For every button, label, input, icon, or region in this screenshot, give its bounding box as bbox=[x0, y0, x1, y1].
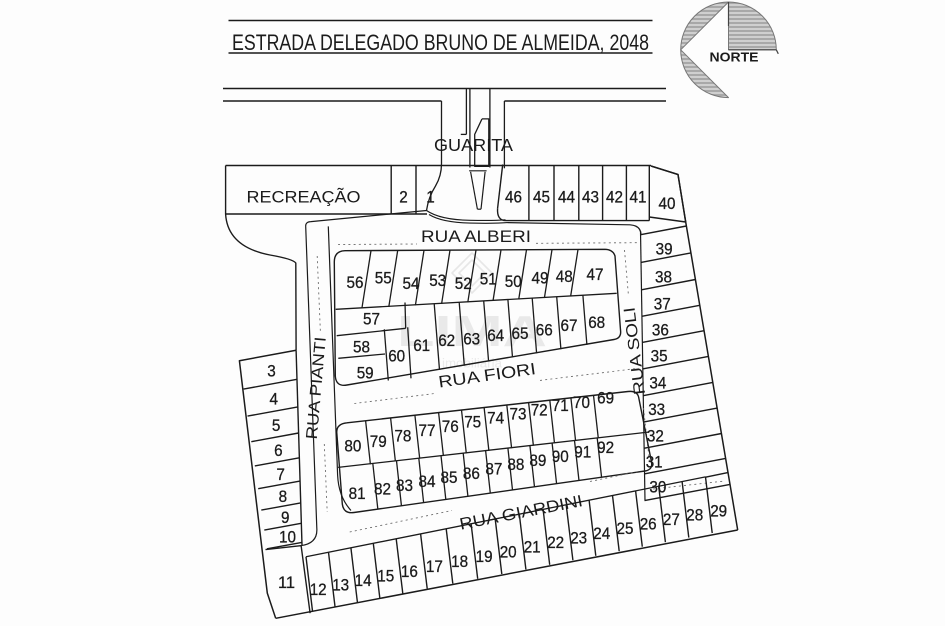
svg-text:5: 5 bbox=[272, 416, 281, 435]
svg-text:76: 76 bbox=[442, 417, 459, 436]
svg-text:86: 86 bbox=[463, 464, 480, 483]
svg-text:69: 69 bbox=[597, 389, 614, 408]
svg-text:48: 48 bbox=[556, 267, 573, 286]
svg-text:27: 27 bbox=[663, 510, 680, 529]
svg-text:42: 42 bbox=[606, 188, 623, 207]
svg-text:78: 78 bbox=[394, 427, 411, 446]
svg-text:49: 49 bbox=[532, 268, 549, 287]
svg-text:32: 32 bbox=[647, 426, 664, 445]
svg-text:65: 65 bbox=[512, 324, 529, 343]
svg-text:NORTE: NORTE bbox=[710, 51, 759, 65]
svg-text:85: 85 bbox=[441, 468, 458, 487]
svg-text:6: 6 bbox=[274, 441, 283, 460]
svg-text:47: 47 bbox=[587, 265, 604, 284]
svg-text:31: 31 bbox=[646, 453, 663, 472]
svg-text:18: 18 bbox=[451, 552, 468, 571]
svg-text:ESTRADA DELEGADO BRUNO DE ALME: ESTRADA DELEGADO BRUNO DE ALMEIDA, 2048 bbox=[232, 30, 649, 55]
svg-text:62: 62 bbox=[438, 331, 455, 350]
svg-text:11: 11 bbox=[278, 573, 295, 592]
svg-text:28: 28 bbox=[686, 505, 703, 524]
svg-text:21: 21 bbox=[524, 538, 541, 557]
svg-text:64: 64 bbox=[487, 326, 504, 345]
svg-text:58: 58 bbox=[353, 337, 370, 356]
svg-text:73: 73 bbox=[510, 405, 527, 424]
svg-text:RUA ALBERI: RUA ALBERI bbox=[421, 228, 531, 246]
svg-text:55: 55 bbox=[375, 268, 392, 287]
svg-text:35: 35 bbox=[651, 347, 668, 366]
svg-text:43: 43 bbox=[582, 188, 599, 207]
svg-text:51: 51 bbox=[480, 269, 497, 288]
svg-text:44: 44 bbox=[558, 188, 575, 207]
svg-text:89: 89 bbox=[529, 451, 546, 470]
svg-text:7: 7 bbox=[276, 465, 285, 484]
svg-text:25: 25 bbox=[617, 519, 634, 538]
svg-text:60: 60 bbox=[388, 347, 405, 366]
svg-text:70: 70 bbox=[573, 393, 590, 412]
svg-text:53: 53 bbox=[429, 271, 446, 290]
svg-text:91: 91 bbox=[574, 442, 591, 461]
svg-text:88: 88 bbox=[507, 455, 524, 474]
svg-text:39: 39 bbox=[656, 240, 673, 259]
svg-text:56: 56 bbox=[347, 273, 364, 292]
svg-text:14: 14 bbox=[355, 571, 372, 590]
svg-text:54: 54 bbox=[403, 274, 420, 293]
svg-text:77: 77 bbox=[419, 421, 436, 440]
svg-text:50: 50 bbox=[505, 272, 522, 291]
svg-text:63: 63 bbox=[463, 329, 480, 348]
svg-text:81: 81 bbox=[349, 484, 366, 503]
svg-text:87: 87 bbox=[485, 459, 502, 478]
svg-text:15: 15 bbox=[377, 567, 394, 586]
svg-text:13: 13 bbox=[332, 575, 349, 594]
svg-text:74: 74 bbox=[487, 409, 504, 428]
svg-text:92: 92 bbox=[597, 438, 614, 457]
svg-text:67: 67 bbox=[561, 316, 578, 335]
svg-text:19: 19 bbox=[476, 547, 493, 566]
svg-text:79: 79 bbox=[370, 432, 387, 451]
svg-text:37: 37 bbox=[654, 294, 671, 313]
svg-text:80: 80 bbox=[344, 436, 361, 455]
svg-text:71: 71 bbox=[552, 396, 569, 415]
svg-text:38: 38 bbox=[655, 268, 672, 287]
svg-text:52: 52 bbox=[455, 274, 472, 293]
svg-text:17: 17 bbox=[426, 557, 443, 576]
svg-text:GUARITA: GUARITA bbox=[434, 135, 513, 155]
svg-text:23: 23 bbox=[570, 528, 587, 547]
svg-text:68: 68 bbox=[588, 313, 605, 332]
svg-text:82: 82 bbox=[374, 480, 391, 499]
svg-text:26: 26 bbox=[640, 515, 657, 534]
svg-text:20: 20 bbox=[500, 542, 517, 561]
svg-text:22: 22 bbox=[547, 533, 564, 552]
svg-text:59: 59 bbox=[357, 363, 374, 382]
svg-text:61: 61 bbox=[413, 336, 430, 355]
svg-text:16: 16 bbox=[401, 562, 418, 581]
svg-text:36: 36 bbox=[652, 321, 669, 340]
svg-text:33: 33 bbox=[648, 400, 665, 419]
svg-text:66: 66 bbox=[536, 320, 553, 339]
svg-text:46: 46 bbox=[505, 188, 522, 207]
svg-text:3: 3 bbox=[267, 362, 276, 381]
svg-text:90: 90 bbox=[552, 447, 569, 466]
svg-text:72: 72 bbox=[531, 401, 548, 420]
svg-text:8: 8 bbox=[279, 487, 288, 506]
svg-text:84: 84 bbox=[419, 472, 436, 491]
svg-text:45: 45 bbox=[533, 188, 550, 207]
svg-text:RECREAÇÃO: RECREAÇÃO bbox=[247, 188, 361, 207]
svg-text:34: 34 bbox=[649, 373, 666, 392]
svg-text:83: 83 bbox=[396, 476, 413, 495]
svg-text:2: 2 bbox=[399, 188, 408, 207]
svg-text:12: 12 bbox=[310, 580, 327, 599]
svg-text:40: 40 bbox=[659, 194, 676, 213]
svg-text:41: 41 bbox=[630, 188, 647, 207]
svg-text:24: 24 bbox=[593, 524, 610, 543]
svg-text:10: 10 bbox=[279, 528, 296, 547]
svg-text:57: 57 bbox=[363, 310, 380, 329]
svg-text:9: 9 bbox=[281, 508, 290, 527]
svg-text:75: 75 bbox=[464, 413, 481, 432]
svg-text:29: 29 bbox=[710, 502, 727, 521]
svg-text:4: 4 bbox=[270, 389, 279, 408]
